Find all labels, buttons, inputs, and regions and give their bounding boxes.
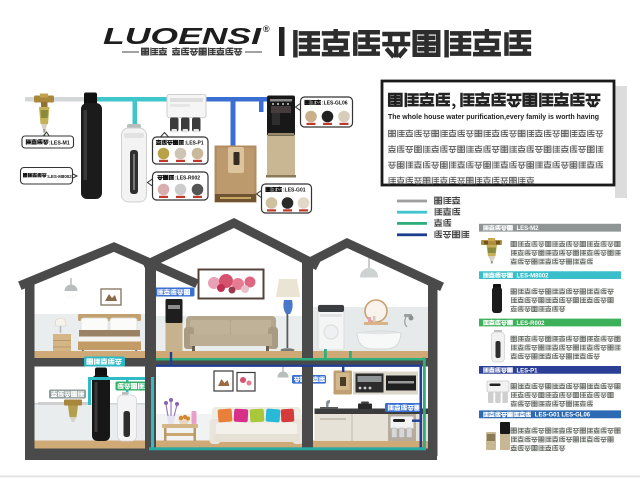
svg-text:The whole house water purifica: The whole house water purification,every…	[388, 112, 599, 121]
svg-text:LUOENSI: LUOENSI	[103, 23, 262, 49]
svg-text:LES-G01 LES-GL06: LES-G01 LES-GL06	[535, 413, 591, 419]
svg-text::LES-P1: :LES-P1	[185, 141, 204, 147]
svg-text::LES-M8002: :LES-M8002	[47, 174, 72, 179]
svg-text:LES-M2: LES-M2	[517, 226, 540, 232]
svg-text:LES-P1: LES-P1	[517, 368, 539, 374]
svg-text::LES-GL06: :LES-GL06	[322, 101, 348, 107]
svg-text::LES-M1: :LES-M1	[49, 140, 70, 146]
svg-text:LES-M8002: LES-M8002	[517, 274, 550, 280]
svg-text:LES-R002: LES-R002	[517, 321, 546, 327]
svg-text::LES-G01: :LES-G01	[283, 188, 306, 194]
svg-text:®: ®	[263, 24, 270, 34]
svg-text::LES-R002: :LES-R002	[175, 176, 200, 182]
